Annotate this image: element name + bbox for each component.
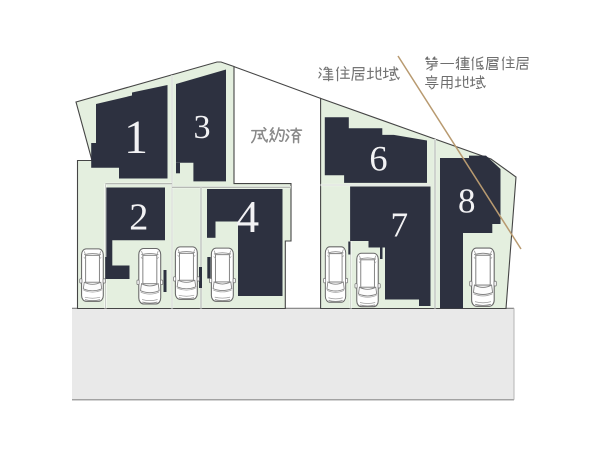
svg-text:1: 1 <box>124 111 148 164</box>
svg-text:8: 8 <box>458 182 475 221</box>
svg-text:7: 7 <box>391 205 409 244</box>
svg-text:3: 3 <box>193 109 210 146</box>
svg-text:6: 6 <box>369 139 387 179</box>
svg-text:2: 2 <box>129 197 148 239</box>
svg-text:4: 4 <box>236 191 259 242</box>
